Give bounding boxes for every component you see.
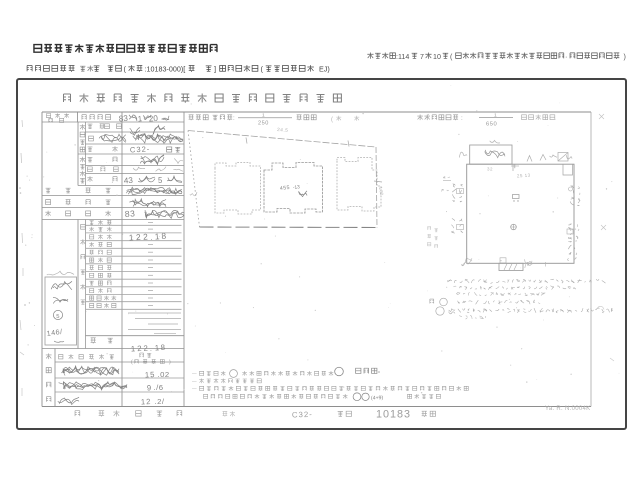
svg-text:10: 10 [433, 53, 441, 61]
svg-text:32: 32 [487, 167, 493, 172]
svg-text:250: 250 [258, 121, 269, 127]
svg-text:18: 18 [154, 231, 168, 242]
svg-text:(: ( [124, 65, 127, 74]
svg-text:18: 18 [155, 343, 167, 353]
svg-text:—: — [192, 371, 197, 376]
svg-text:.2/: .2/ [155, 397, 165, 406]
svg-text:Ya. R. N.0004K: Ya. R. N.0004K [545, 406, 590, 412]
svg-text:146/: 146/ [46, 327, 63, 338]
svg-text:83: 83 [124, 208, 135, 219]
svg-text:1: 1 [137, 114, 142, 123]
svg-text:./6: ./6 [154, 383, 164, 392]
svg-text:-13: -13 [293, 184, 301, 191]
svg-text:1: 1 [262, 113, 265, 119]
svg-text:(: ( [261, 65, 264, 74]
svg-text:): ) [169, 360, 171, 366]
svg-text:650: 650 [486, 122, 497, 128]
svg-text:7: 7 [420, 53, 424, 61]
svg-text:20: 20 [149, 114, 159, 124]
svg-text:25 13: 25 13 [517, 173, 531, 179]
svg-text:—: — [192, 379, 197, 384]
svg-text::: : [461, 115, 463, 122]
svg-text:5: 5 [56, 314, 59, 320]
svg-text:(: ( [450, 53, 453, 61]
svg-text:9: 9 [147, 383, 152, 392]
svg-text:5: 5 [158, 176, 163, 185]
svg-text:43: 43 [124, 176, 134, 186]
svg-text:12: 12 [141, 397, 152, 407]
svg-text::114: :114 [396, 53, 409, 61]
svg-text:): ) [624, 53, 626, 61]
svg-text:.: . [150, 346, 152, 353]
svg-text:455: 455 [280, 185, 291, 192]
svg-text::10183-000)[: :10183-000)[ [145, 65, 186, 74]
svg-text:(4+9): (4+9) [371, 395, 384, 401]
svg-text:]: ] [214, 65, 216, 74]
svg-text:24.5: 24.5 [277, 127, 289, 134]
svg-text:(: ( [131, 360, 133, 366]
svg-text:122: 122 [131, 344, 150, 354]
svg-text:C32-: C32- [292, 410, 313, 420]
svg-text:1: 1 [494, 113, 497, 119]
svg-text::: : [233, 115, 235, 122]
svg-text:°: ° [378, 371, 380, 377]
svg-text:(: ( [331, 117, 333, 123]
svg-text:C32-: C32- [130, 144, 151, 154]
svg-text:83: 83 [119, 114, 129, 124]
svg-text:10183: 10183 [376, 409, 411, 421]
svg-text:·: · [565, 53, 567, 61]
svg-text:—: — [192, 386, 197, 391]
svg-text:EJ): EJ) [319, 65, 330, 74]
svg-text:.: . [151, 233, 153, 242]
svg-text:15: 15 [145, 370, 156, 380]
svg-text:.02: .02 [158, 370, 170, 379]
